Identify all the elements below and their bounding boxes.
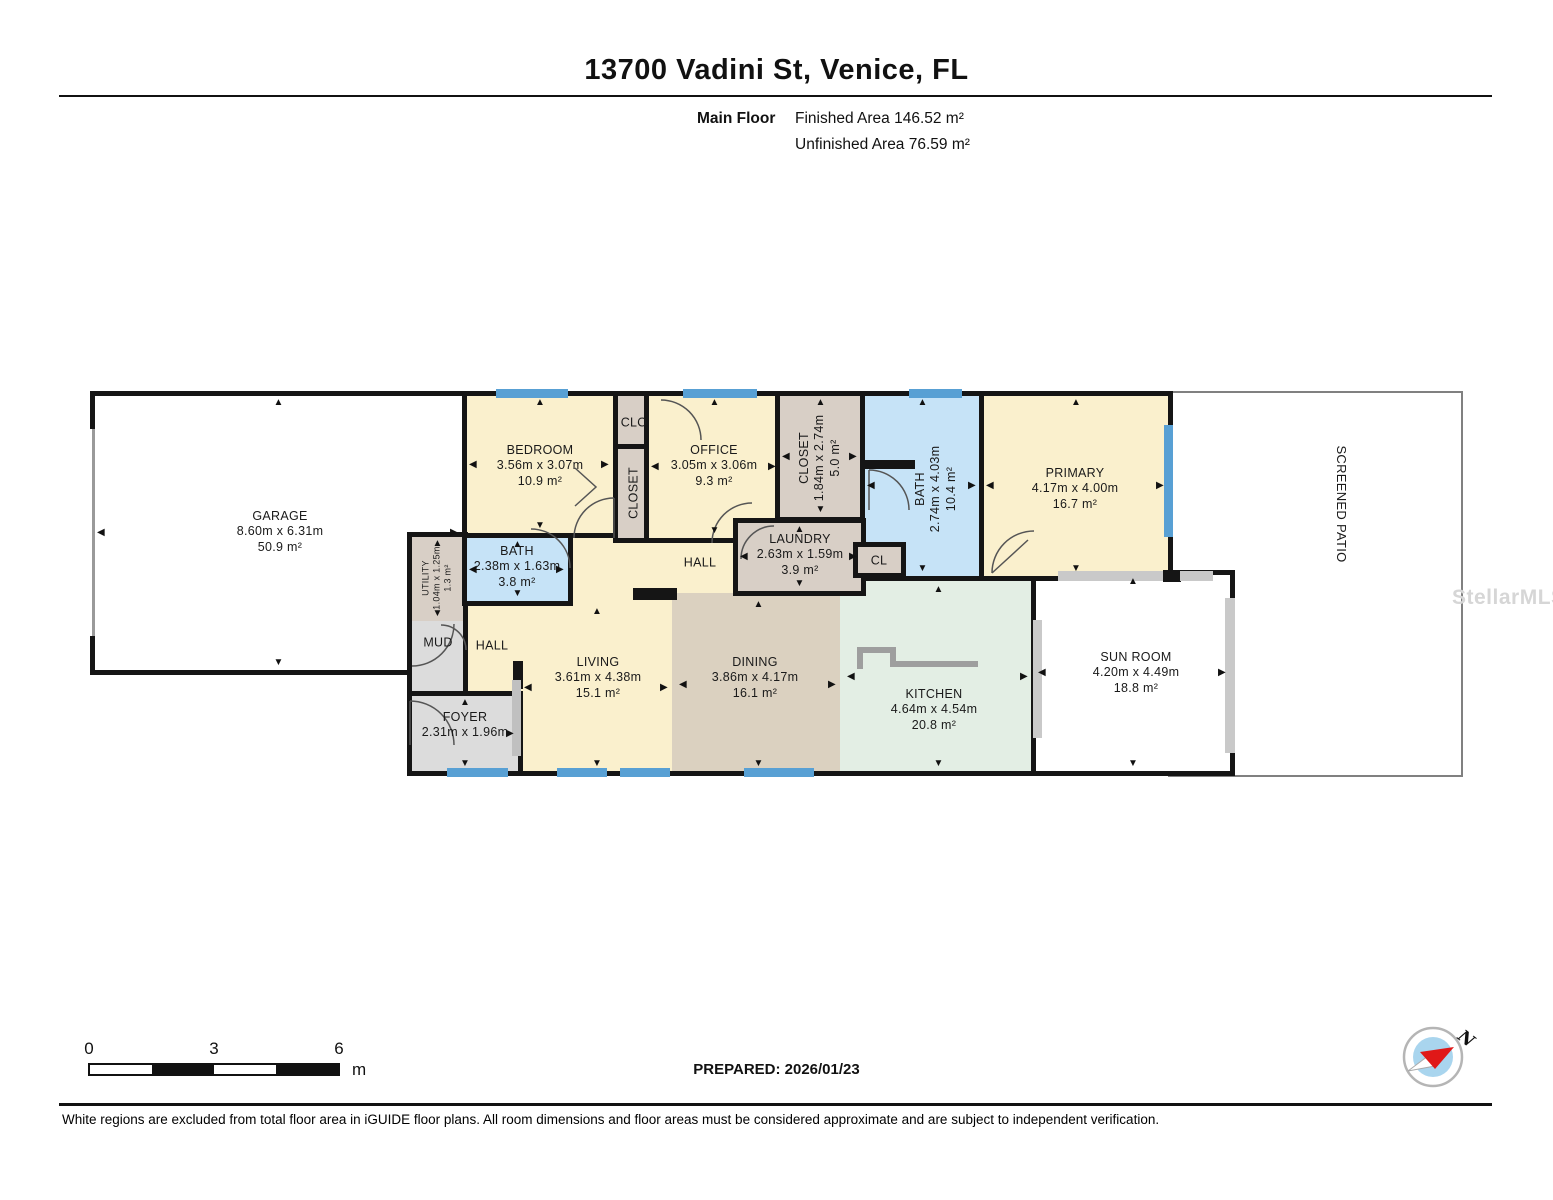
room-name: CLO [621,415,648,430]
room-name: OFFICE [671,443,758,458]
dimension-arrow-l: ◀ [986,481,994,491]
room-label-cl: CL [871,553,888,568]
dimension-arrow-t: ▲ [460,698,470,708]
dimension-arrow-l: ◀ [679,680,687,690]
room-name: UTILITY [421,546,432,609]
dimension-arrow-l: ◀ [847,672,855,682]
dimension-arrow-t: ▲ [918,398,928,408]
dimension-arrow-t: ▲ [433,539,443,549]
dimension-arrow-l: ◀ [782,452,790,462]
room-name: LIVING [555,655,642,670]
room-name: HALL [684,555,716,570]
room-area: 15.1 m² [555,686,642,701]
dimension-arrow-r: ▶ [849,452,857,462]
room-dim: 2.38m x 1.63m [474,559,561,574]
room-dim: 3.86m x 4.17m [712,670,799,685]
room-name: HALL [476,638,508,653]
door-arcs [0,0,1553,1200]
room-area: 18.8 m² [1093,681,1180,696]
room-area: 10.4 m² [944,446,959,533]
dimension-arrow-l: ◀ [97,528,105,538]
room-label-hall-upper: HALL [684,555,716,570]
dimension-arrow-r: ▶ [849,552,857,562]
dimension-arrow-b: ▼ [918,564,928,574]
room-name: SUN ROOM [1093,650,1180,665]
room-name: BATH [913,446,928,533]
room-label-primary: PRIMARY4.17m x 4.00m16.7 m² [1032,466,1119,512]
room-dim: 2.31m x 1.96m [422,725,509,740]
room-name: PRIMARY [1032,466,1119,481]
dimension-arrow-l: ◀ [524,683,532,693]
dimension-arrow-b: ▼ [795,579,805,589]
room-dim: 3.05m x 3.06m [671,458,758,473]
dimension-arrow-b: ▼ [460,759,470,769]
dimension-arrow-b: ▼ [754,759,764,769]
dimension-arrow-b: ▼ [535,521,545,531]
dimension-arrow-t: ▲ [1071,398,1081,408]
dimension-arrow-r: ▶ [1020,672,1028,682]
door-arc [712,503,752,543]
room-label-utility: UTILITY1.04m x 1.25m1.3 m² [421,546,454,609]
room-area: 20.8 m² [891,718,978,733]
room-area: 5.0 m² [828,415,843,502]
room-dim: 4.20m x 4.49m [1093,665,1180,680]
dimension-arrow-b: ▼ [592,759,602,769]
room-label-office: OFFICE3.05m x 3.06m9.3 m² [671,443,758,489]
compass-icon [1402,1026,1464,1088]
dimension-arrow-r: ▶ [450,528,458,538]
room-name: CLOSET [626,467,641,519]
dimension-arrow-r: ▶ [660,683,668,693]
room-dim: 4.17m x 4.00m [1032,481,1119,496]
dimension-arrow-r: ▶ [768,462,776,472]
room-dim: 3.61m x 4.38m [555,670,642,685]
room-label-bath-hall: BATH2.38m x 1.63m3.8 m² [474,544,561,590]
room-name: BEDROOM [497,443,584,458]
dimension-arrow-t: ▲ [934,585,944,595]
room-dim: 4.64m x 4.54m [891,702,978,717]
dimension-arrow-b: ▼ [1128,759,1138,769]
door-arc [661,400,701,440]
room-name: DINING [712,655,799,670]
dimension-arrow-t: ▲ [274,398,284,408]
dimension-arrow-b: ▼ [433,609,443,619]
dimension-arrow-t: ▲ [795,525,805,535]
room-label-bath-main: BATH2.74m x 4.03m10.4 m² [913,446,959,533]
room-name: FOYER [422,710,509,725]
room-label-bedroom: BEDROOM3.56m x 3.07m10.9 m² [497,443,584,489]
room-dim: 8.60m x 6.31m [237,524,324,539]
dimension-arrow-t: ▲ [710,398,720,408]
dimension-arrow-t: ▲ [816,398,826,408]
dimension-arrow-r: ▶ [556,565,564,575]
room-name: MUD [423,635,452,650]
dimension-arrow-l: ◀ [1038,668,1046,678]
room-area: 1.3 m² [442,546,453,609]
room-label-mud: MUD [423,635,452,650]
room-label-kitchen: KITCHEN4.64m x 4.54m20.8 m² [891,687,978,733]
dimension-arrow-l: ◀ [469,565,477,575]
room-dim: 2.63m x 1.59m [757,547,844,562]
dimension-arrow-b: ▼ [816,505,826,515]
room-label-garage: GARAGE8.60m x 6.31m50.9 m² [237,509,324,555]
room-name: SCREENED PATIO [1333,445,1349,562]
room-name: GARAGE [237,509,324,524]
room-label-sunroom: SUN ROOM4.20m x 4.49m18.8 m² [1093,650,1180,696]
room-area: 16.7 m² [1032,497,1119,512]
room-dim: 2.74m x 4.03m [928,446,943,533]
door-leaf [992,540,1028,573]
dimension-arrow-b: ▼ [274,658,284,668]
dimension-arrow-l: ◀ [740,552,748,562]
door-arc [869,470,909,510]
room-name: CL [871,553,888,568]
room-name: KITCHEN [891,687,978,702]
room-dim: 1.84m x 2.74m [812,415,827,502]
room-label-hall-lower: HALL [476,638,508,653]
dimension-arrow-t: ▲ [535,398,545,408]
dimension-arrow-t: ▲ [513,540,523,550]
dimension-arrow-t: ▲ [1128,577,1138,587]
dimension-arrow-l: ◀ [867,481,875,491]
room-label-foyer: FOYER2.31m x 1.96m [422,710,509,741]
dimension-arrow-r: ▶ [828,680,836,690]
dimension-arrow-b: ▼ [934,759,944,769]
dimension-arrow-l: ◀ [469,460,477,470]
door-arc [574,498,614,538]
dimension-arrow-b: ▼ [1071,564,1081,574]
dimension-arrow-r: ▶ [968,481,976,491]
room-area: 10.9 m² [497,474,584,489]
room-label-laundry: LAUNDRY2.63m x 1.59m3.9 m² [757,532,844,578]
dimension-arrow-r: ▶ [601,460,609,470]
dimension-arrow-r: ▶ [1156,481,1164,491]
room-label-dining: DINING3.86m x 4.17m16.1 m² [712,655,799,701]
room-label-closet-hall: CLOSET [626,467,641,519]
dimension-arrow-r: ▶ [506,729,514,739]
room-name: CLOSET [797,415,812,502]
room-area: 3.9 m² [757,563,844,578]
room-area: 16.1 m² [712,686,799,701]
dimension-arrow-b: ▼ [710,526,720,536]
floorplan-page: 13700 Vadini St, Venice, FL Main Floor F… [0,0,1553,1200]
room-area: 50.9 m² [237,540,324,555]
room-area: 9.3 m² [671,474,758,489]
room-dim: 3.56m x 3.07m [497,458,584,473]
dimension-arrow-b: ▼ [513,589,523,599]
room-dim: 1.04m x 1.25m [432,546,443,609]
room-label-living: LIVING3.61m x 4.38m15.1 m² [555,655,642,701]
room-label-clo: CLO [621,415,648,430]
stellar-mls-watermark: StellarMLS [1452,586,1553,610]
dimension-arrow-r: ▶ [1218,668,1226,678]
dimension-arrow-l: ◀ [651,462,659,472]
room-label-screened-patio: SCREENED PATIO [1333,445,1349,562]
dimension-arrow-t: ▲ [592,607,602,617]
dimension-arrow-t: ▲ [754,600,764,610]
room-label-closet-primary: CLOSET1.84m x 2.74m5.0 m² [797,415,843,502]
